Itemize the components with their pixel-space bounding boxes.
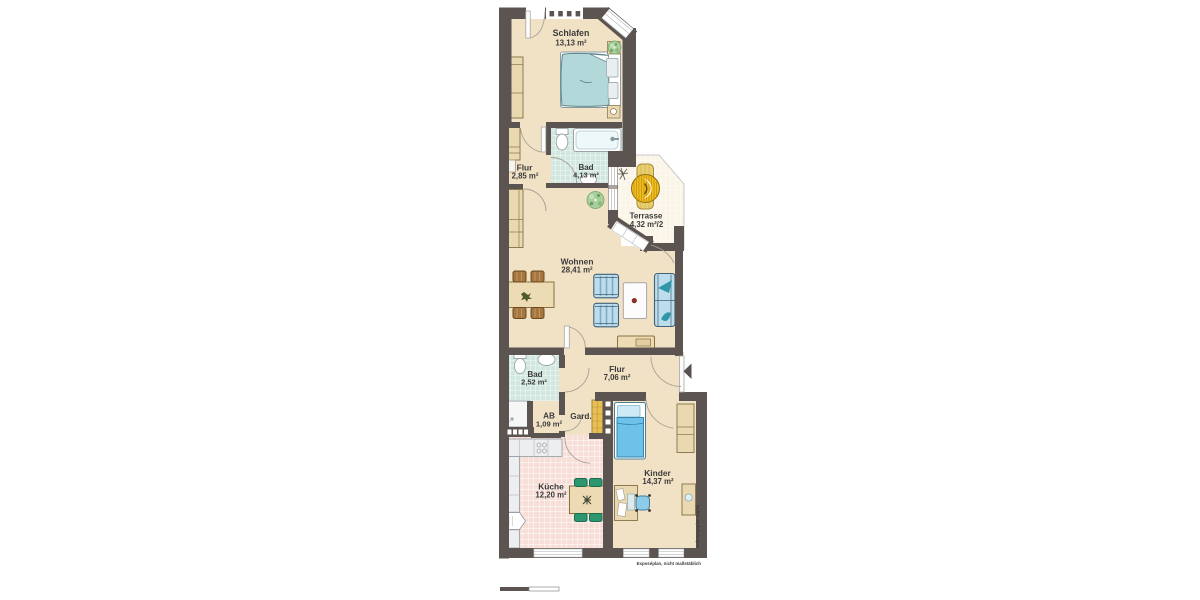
svg-text:1,09 m²: 1,09 m²: [536, 420, 563, 429]
svg-text:2,85 m²: 2,85 m²: [512, 172, 539, 181]
svg-text:12,20 m²: 12,20 m²: [535, 491, 567, 500]
svg-text:4,13 m²: 4,13 m²: [573, 171, 599, 180]
svg-text:14,37 m²: 14,37 m²: [642, 477, 674, 486]
svg-text:28,41 m²: 28,41 m²: [561, 266, 593, 275]
svg-text:Schlafen: Schlafen: [553, 28, 590, 38]
svg-text:13,13 m²: 13,13 m²: [555, 39, 587, 48]
svg-text:Exposéplan, nicht maßstäblich: Exposéplan, nicht maßstäblich: [637, 561, 702, 566]
svg-text:2,52 m²: 2,52 m²: [521, 378, 547, 387]
svg-text:7,06 m²: 7,06 m²: [604, 373, 631, 382]
svg-text:Gard.: Gard.: [570, 412, 591, 421]
svg-text:4,32 m²/2: 4,32 m²/2: [630, 220, 664, 229]
svg-text:wohnungsplan-digital: wohnungsplan-digital: [695, 505, 700, 549]
